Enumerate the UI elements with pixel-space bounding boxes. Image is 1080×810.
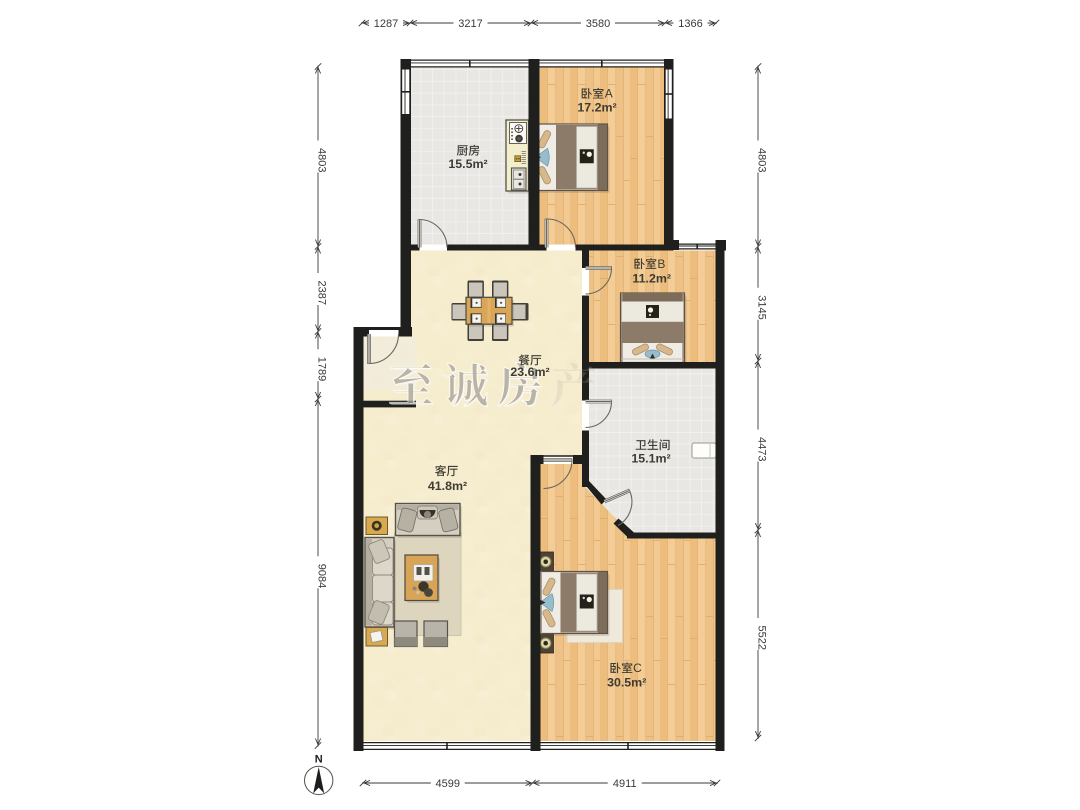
svg-text:C: C: [633, 661, 642, 675]
svg-text:4803: 4803: [756, 148, 768, 172]
svg-text:15.1m²: 15.1m²: [631, 452, 670, 466]
svg-text:41.8m²: 41.8m²: [428, 479, 467, 493]
svg-text:3217: 3217: [458, 18, 482, 30]
svg-text:4803: 4803: [316, 148, 328, 172]
svg-text:9084: 9084: [316, 564, 328, 588]
svg-text:4911: 4911: [613, 778, 637, 790]
svg-text:3580: 3580: [586, 18, 610, 30]
svg-text:B: B: [657, 257, 665, 271]
svg-text:1287: 1287: [374, 18, 398, 30]
svg-text:5522: 5522: [756, 626, 768, 650]
svg-text:A: A: [605, 87, 613, 101]
svg-text:17.2m²: 17.2m²: [577, 101, 616, 115]
svg-text:3145: 3145: [756, 295, 768, 319]
svg-text:2387: 2387: [316, 281, 328, 305]
svg-text:30.5m²: 30.5m²: [607, 675, 646, 689]
svg-text:11.2m²: 11.2m²: [632, 271, 671, 285]
svg-text:23.6m²: 23.6m²: [510, 365, 549, 379]
svg-text:4473: 4473: [756, 437, 768, 461]
svg-text:4599: 4599: [436, 778, 460, 790]
svg-text:N: N: [315, 754, 323, 766]
svg-text:1366: 1366: [678, 18, 702, 30]
svg-text:15.5m²: 15.5m²: [448, 157, 487, 171]
svg-text:1789: 1789: [316, 357, 328, 381]
